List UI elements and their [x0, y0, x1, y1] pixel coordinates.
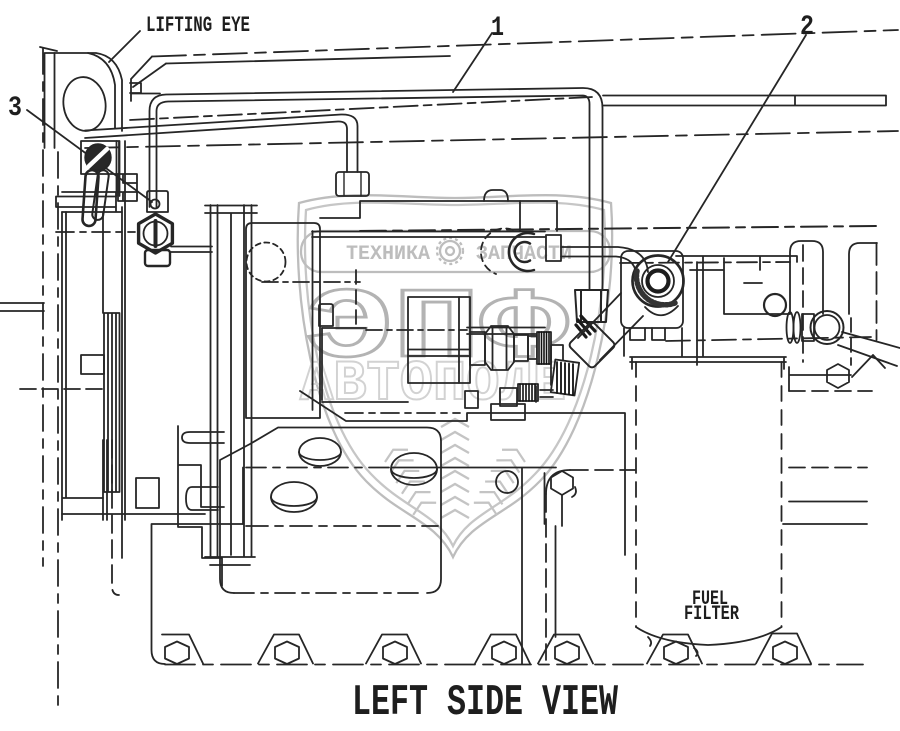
svg-text:2: 2 [800, 12, 814, 43]
svg-text:FILTER: FILTER [684, 603, 740, 626]
svg-text:3: 3 [8, 93, 22, 124]
svg-text:ТЕХНИКА: ТЕХНИКА [346, 243, 430, 266]
svg-text:LEFT SIDE VIEW: LEFT SIDE VIEW [352, 679, 619, 728]
svg-text:1: 1 [491, 13, 504, 44]
svg-text:LIFTING EYE: LIFTING EYE [146, 12, 250, 38]
